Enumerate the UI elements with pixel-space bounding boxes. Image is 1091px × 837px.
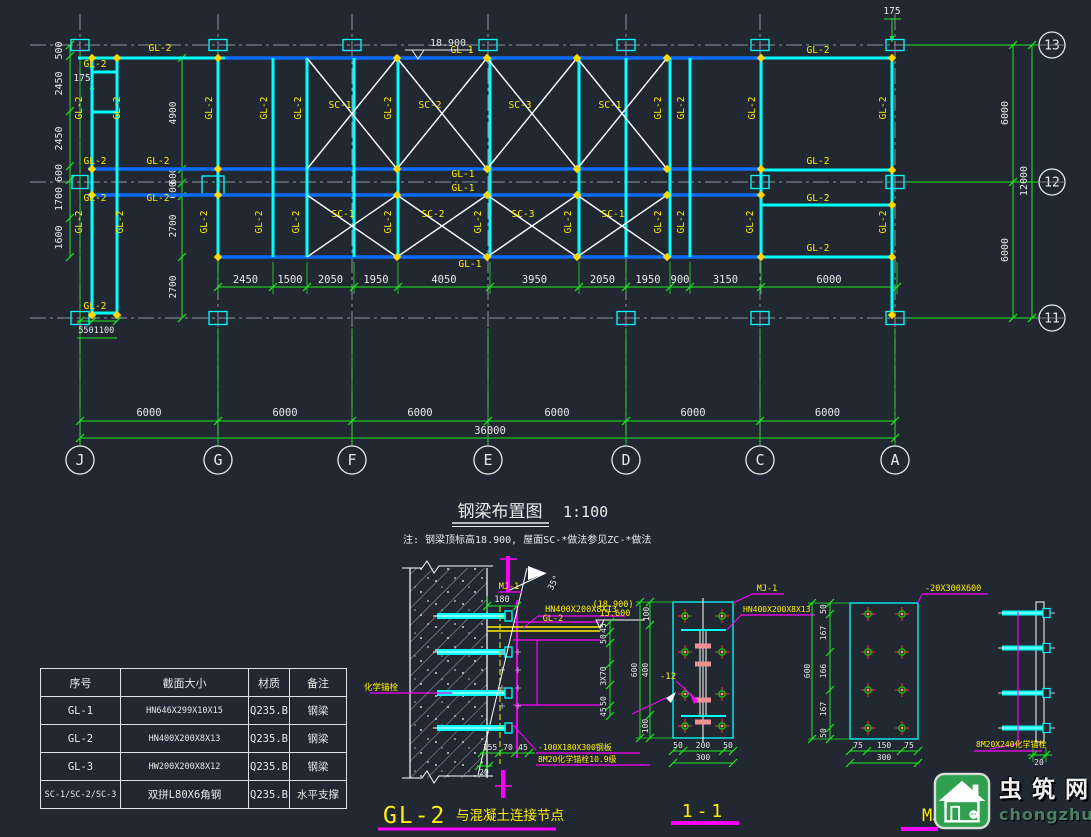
table-cell: Q235.B	[249, 697, 290, 725]
dim-label: 6000	[407, 407, 432, 419]
beam-label: GL-2	[74, 211, 85, 234]
dim-label: 6000	[680, 407, 705, 419]
dim-180: 180	[494, 595, 509, 605]
dim-label: 45	[599, 623, 608, 633]
dim-label: 167	[819, 626, 828, 641]
dim-label: 45	[599, 707, 608, 717]
dim-label: 600	[630, 663, 639, 678]
detail-section-1-1	[632, 594, 815, 823]
offset-label: 175	[883, 6, 900, 17]
dim-label: 3950	[522, 274, 547, 286]
dim-label: 1700	[54, 187, 65, 211]
dim-label: 6000	[544, 407, 569, 419]
dim-label: 75	[853, 741, 863, 750]
table-cell: GL-1	[41, 697, 121, 725]
dim-label: 600	[803, 664, 812, 679]
dim-label: 4050	[431, 274, 456, 286]
table-cell: 双拼L80X6角钢	[121, 781, 249, 809]
dim-label: 4900	[168, 101, 179, 124]
beam-label: GL-2	[147, 193, 170, 204]
dim-total-label: 36000	[474, 425, 506, 437]
table-header-cell: 材质	[249, 669, 290, 697]
member-schedule-table: 序号截面大小材质备注GL-1HN646X299X10X15Q235.B钢梁GL-…	[40, 668, 347, 809]
brace-label: SC-3	[512, 209, 535, 220]
connection-nodes	[88, 54, 896, 319]
table-row: GL-2HN400X200X8X13Q235.B钢梁	[41, 725, 347, 753]
dim-label: 2700	[168, 275, 179, 298]
dim-label: 1950	[635, 274, 660, 286]
drawing-title: 钢梁布置图	[458, 502, 543, 522]
anchor-note-label: 8M20化学锚栓10.9级	[538, 754, 617, 764]
detail-anchor-side-view	[974, 602, 1055, 762]
dim-label: 2450	[233, 274, 258, 286]
dim-label: 2050	[318, 274, 343, 286]
dim-label: 50	[599, 696, 608, 706]
dim-label: 6000	[136, 407, 161, 419]
dim-label: 1600	[54, 225, 65, 249]
drawing-title-block: 钢梁布置图 1:100 注: 钢梁顶标高18.900, 屋面SC-*做法参见ZC…	[403, 502, 651, 546]
beams	[78, 58, 892, 315]
dim-label: 45	[518, 743, 528, 752]
md-anchor-label: 8M20X240化学锚栓	[976, 739, 1047, 749]
watermark-name: 虫筑网	[999, 779, 1091, 802]
mb-beam-spec: HN400X200X8X13	[743, 605, 811, 614]
beam-label: GL-2	[254, 211, 265, 234]
beam-label: GL-2	[84, 156, 107, 167]
grid-bubble: E	[483, 451, 492, 469]
dim-label: 50	[819, 728, 828, 738]
beam-label: GL-2	[383, 211, 394, 234]
dim-label: 100	[642, 607, 651, 622]
table-cell: 水平支撑	[290, 781, 347, 809]
dim-label: 550	[78, 326, 93, 336]
dim-label: 300	[877, 753, 892, 762]
dim-label: 167	[819, 702, 828, 717]
detail-b-title: 1-1	[682, 801, 727, 822]
grid-bubble: F	[347, 451, 356, 469]
drawing-scale: 1:100	[563, 503, 608, 521]
dim-label: 50	[599, 634, 608, 644]
table-cell: GL-2	[41, 725, 121, 753]
beam-label: GL-2	[383, 97, 394, 120]
dim-label: 6000	[1000, 101, 1011, 125]
beam-label: GL-2	[204, 97, 215, 120]
beam-label: GL-2	[84, 301, 107, 312]
mb-plate-label: -12	[660, 672, 676, 682]
dim-label: 200	[696, 741, 711, 750]
dim-label: 2700	[168, 214, 179, 237]
grid-bubble: G	[213, 451, 222, 469]
angle-label: 35°	[546, 574, 562, 592]
dim-label: 1950	[363, 274, 388, 286]
dim-label: 166	[819, 664, 828, 679]
dim-label: 400	[641, 663, 650, 678]
dim-label: 900	[671, 274, 690, 286]
beam-label: GL-2	[807, 193, 830, 204]
dim-label: 500	[54, 41, 65, 59]
beam-label: GL-2	[878, 211, 889, 234]
brace-label: SC-1	[599, 100, 622, 111]
chongzhu-house-icon	[933, 772, 991, 830]
grid-bubble: D	[621, 451, 630, 469]
horizontal-braces	[307, 58, 667, 257]
brace-label: SC-2	[419, 100, 442, 111]
elevation-value: 18.900	[430, 38, 466, 49]
dim-label: 50	[673, 741, 683, 750]
grid-bubble: C	[755, 451, 764, 469]
dim-label: 6000	[1000, 238, 1011, 262]
dim-label: 1100	[94, 326, 114, 336]
beam-label: GL-2	[807, 45, 830, 56]
beam-label: GL-2	[259, 97, 270, 120]
dim-label: 70	[503, 743, 513, 752]
dim-label: 100	[641, 719, 650, 734]
beam-name-label: GL-2	[543, 614, 563, 624]
beam-label: GL-2	[74, 97, 85, 120]
dim-label: 20	[1034, 758, 1044, 767]
offset-label: 175	[73, 73, 90, 84]
beam-label: GL-2	[84, 59, 107, 70]
watermark-domain: chongzhu.cn	[999, 805, 1091, 824]
dim-label: 20	[479, 768, 489, 777]
dim-label: 150	[877, 741, 892, 750]
table-cell: SC-1/SC-2/SC-3	[41, 781, 121, 809]
dim-label: 6000	[816, 274, 841, 286]
dim-label: 1500	[277, 274, 302, 286]
dim-label: 600	[54, 164, 65, 182]
table-cell: Q235.B	[249, 781, 290, 809]
table-cell: 钢梁	[290, 725, 347, 753]
mc-plate-label: -20X300X600	[925, 584, 981, 594]
dim-label: 12000	[1019, 166, 1030, 196]
table-header-cell: 备注	[290, 669, 347, 697]
dim-label: 50	[819, 604, 828, 614]
brace-label: SC-1	[602, 209, 625, 220]
dim-label: 50	[723, 741, 733, 750]
elev-label: 15.600	[600, 609, 631, 619]
table-cell: 钢梁	[290, 753, 347, 781]
beam-label: GL-2	[473, 211, 484, 234]
watermark-logo: 虫筑网 chongzhu.cn	[933, 772, 1091, 830]
watermark-text: 虫筑网 chongzhu.cn	[999, 779, 1091, 824]
dim-label: 6000	[272, 407, 297, 419]
beam-label: GL-2	[807, 156, 830, 167]
mb-mj-label: MJ-1	[757, 584, 777, 594]
beam-label: GL-2	[291, 211, 302, 234]
beam-label: GL-2	[878, 97, 889, 120]
table-cell: HW200X200X8X12	[121, 753, 249, 781]
dim-label: 2450	[54, 126, 65, 150]
detail-a-title-rest: 与混凝土连接节点	[456, 807, 564, 824]
beam-label: GL-2	[747, 97, 758, 120]
beam-label: GL-2	[293, 97, 304, 120]
brace-label: SC-1	[332, 209, 355, 220]
grid-bubble: J	[75, 451, 84, 469]
beam-label: GL-1	[452, 169, 475, 180]
table-cell: HN400X200X8X13	[121, 725, 249, 753]
dim-label: 2450	[54, 71, 65, 95]
dim-label: 75	[904, 741, 914, 750]
beam-label: GL-2	[149, 43, 172, 54]
table-cell: Q235.B	[249, 725, 290, 753]
grid-bubble: A	[890, 451, 899, 469]
table-cell: GL-3	[41, 753, 121, 781]
beam-label: GL-2	[199, 211, 210, 234]
beam-label: GL-2	[807, 243, 830, 254]
table-header-cell: 截面大小	[121, 669, 249, 697]
brace-label: SC-2	[422, 209, 445, 220]
dim-label: 2050	[590, 274, 615, 286]
beam-label: GL-2	[676, 211, 687, 234]
brace-label: SC-1	[329, 100, 352, 111]
dim-label: 6000	[815, 407, 840, 419]
dim-label: 300	[696, 753, 711, 762]
table-row: GL-3HW200X200X8X12Q235.B钢梁	[41, 753, 347, 781]
beam-label: GL-2	[147, 156, 170, 167]
beam-label: GL-1	[452, 183, 475, 194]
brace-label: SC-3	[509, 100, 532, 111]
grid-bubble: 13	[1044, 39, 1060, 54]
table-header-cell: 序号	[41, 669, 121, 697]
plate-note-label: -100X180X300钢板	[538, 742, 612, 752]
beam-label: GL-2	[115, 211, 126, 234]
beam-label: GL-2	[563, 211, 574, 234]
cad-drawing-stage: 2450150020501950405039502050195090031506…	[0, 0, 1091, 837]
table-row: SC-1/SC-2/SC-3双拼L80X6角钢Q235.B水平支撑	[41, 781, 347, 809]
beam-label: GL-2	[653, 97, 664, 120]
drawing-note: 注: 钢梁顶标高18.900, 屋面SC-*做法参见ZC-*做法	[403, 533, 651, 546]
dim-label: 3150	[713, 274, 738, 286]
beam-label: GL-2	[653, 211, 664, 234]
ma-mj-label: MJ-1	[499, 582, 519, 592]
beam-label: GL-2	[745, 211, 756, 234]
beam-labels: GL-2GL-2GL-2GL-2GL-2GL-2GL-2GL-2GL-2GL-2…	[74, 43, 889, 312]
table-row: GL-1HN646X299X10X15Q235.B钢梁	[41, 697, 347, 725]
d im-label: 3X70	[599, 666, 608, 685]
table-cell: HN646X299X10X15	[121, 697, 249, 725]
grid-bubble: 11	[1044, 312, 1060, 327]
table-cell: Q235.B	[249, 753, 290, 781]
chem-anchor-label: 化学锚栓	[364, 682, 399, 693]
beam-label: GL-2	[112, 97, 123, 120]
grid-bubble: 12	[1044, 176, 1060, 191]
beam-label: GL-2	[84, 193, 107, 204]
beam-label: GL-1	[459, 259, 482, 270]
detail-gl2-concrete-connection	[370, 556, 650, 829]
dim-label: 155	[483, 743, 498, 752]
detail-a-title: GL-2	[383, 803, 446, 829]
table-cell: 钢梁	[290, 697, 347, 725]
beam-label: GL-2	[676, 97, 687, 120]
